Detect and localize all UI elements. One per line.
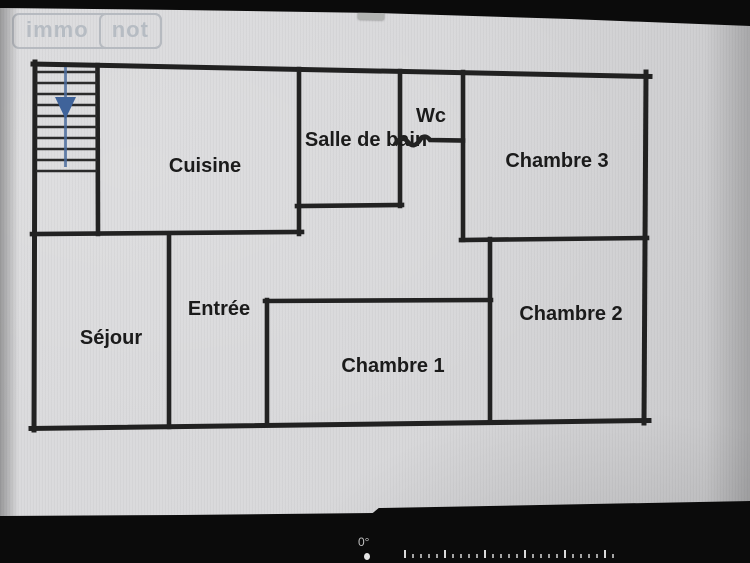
wall-staircase-right xyxy=(98,65,99,234)
room-label-chambre-1: Chambre 1 xyxy=(341,355,444,377)
floor-plan: Cuisine Salle de bain Wc Chambre 3 Séjou… xyxy=(0,0,750,563)
wall-chambre1-top xyxy=(265,300,491,301)
room-label-chambre-2: Chambre 2 xyxy=(519,303,622,325)
room-label-sejour: Séjour xyxy=(80,327,142,349)
screen: immo not xyxy=(0,0,750,563)
camera-angle-indicator: 0° xyxy=(358,535,369,549)
photo-of-screen: immo not xyxy=(0,0,750,563)
wall-outer-top xyxy=(33,64,650,77)
wall-outer-right xyxy=(644,72,646,423)
wall-top-divider xyxy=(32,232,302,234)
camera-level-dot-icon xyxy=(364,553,370,560)
room-label-chambre-3: Chambre 3 xyxy=(505,150,608,172)
room-label-wc: Wc xyxy=(416,105,446,127)
room-label-cuisine: Cuisine xyxy=(169,155,241,177)
wall-outer-left xyxy=(34,62,35,430)
wall-outer-bottom xyxy=(31,421,649,429)
wall-salledebain-bottom xyxy=(297,205,402,206)
wall-chambre3-bottom xyxy=(461,238,647,240)
room-label-entree: Entrée xyxy=(188,298,250,320)
camera-ruler-minor-ticks xyxy=(404,554,618,558)
interior-walls xyxy=(32,65,647,427)
